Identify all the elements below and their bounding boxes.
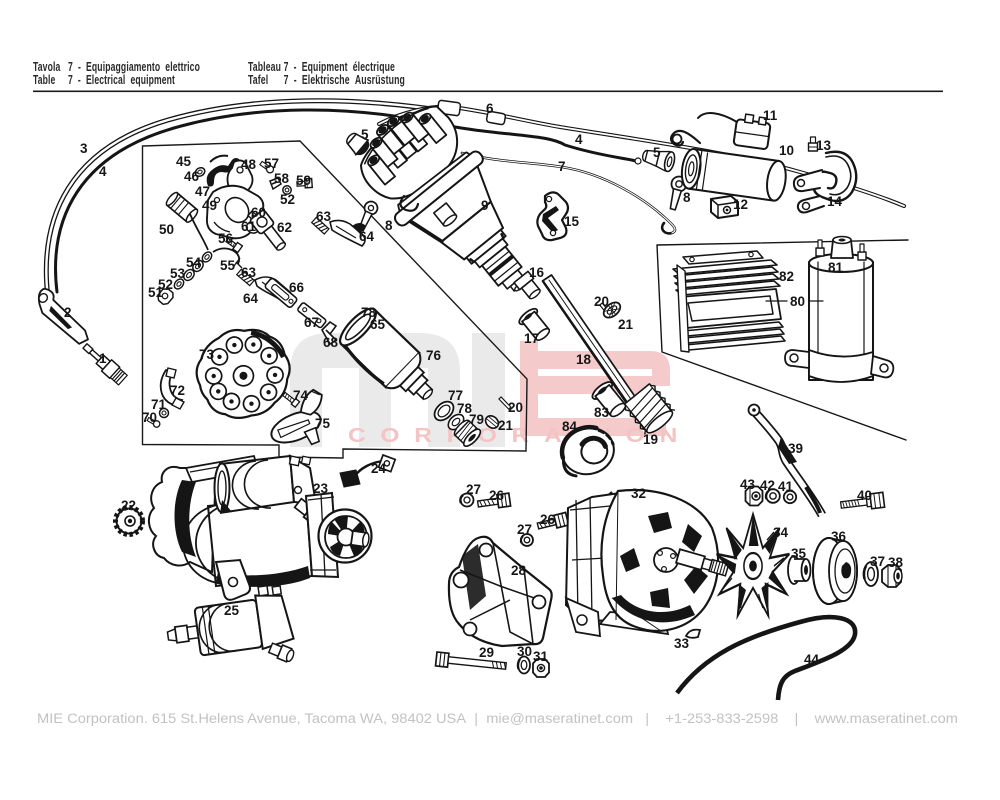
svg-text:73: 73 [199,347,215,362]
svg-text:3: 3 [80,141,88,156]
svg-text:19: 19 [643,432,658,447]
svg-text:4: 4 [99,164,107,179]
svg-text:14: 14 [827,194,843,209]
svg-text:39: 39 [788,441,803,456]
svg-text:7: 7 [558,159,566,174]
svg-text:37: 37 [870,554,885,569]
svg-text:55: 55 [220,258,236,273]
svg-text:46: 46 [184,169,200,184]
svg-text:Tafel 7 - Elektrische: Tafel 7 - Elektrische Ausrüstung [248,72,405,87]
svg-text:50: 50 [159,222,174,237]
svg-text:60: 60 [251,205,266,220]
svg-text:8: 8 [385,218,393,233]
svg-text:32: 32 [631,486,646,501]
svg-text:33: 33 [674,636,690,651]
svg-text:26: 26 [540,512,556,527]
svg-text:57: 57 [264,156,279,171]
svg-text:74: 74 [293,388,309,403]
svg-text:62: 62 [277,220,292,235]
svg-text:13: 13 [816,138,832,153]
svg-text:52: 52 [280,192,295,207]
svg-text:78: 78 [361,305,377,320]
svg-text:12: 12 [733,197,748,212]
svg-text:75: 75 [315,416,331,431]
svg-text:84: 84 [562,419,578,434]
svg-text:20: 20 [508,400,523,415]
svg-text:22: 22 [121,498,136,513]
svg-text:64: 64 [243,291,259,306]
svg-text:8: 8 [683,190,691,205]
svg-text:10: 10 [779,143,794,158]
svg-text:MIE Corporation. 615 St.Helens: MIE Corporation. 615 St.Helens Avenue, T… [37,711,958,726]
svg-text:47: 47 [195,184,210,199]
svg-text:4: 4 [575,132,583,147]
svg-text:6: 6 [486,101,494,116]
svg-text:58: 58 [274,171,290,186]
svg-text:27: 27 [517,522,532,537]
svg-text:70: 70 [142,410,157,425]
svg-text:30: 30 [517,644,532,659]
svg-text:72: 72 [170,383,185,398]
svg-text:56: 56 [218,231,234,246]
svg-text:5: 5 [361,127,369,142]
svg-text:21: 21 [498,418,514,433]
svg-text:80: 80 [790,294,805,309]
svg-text:23: 23 [313,481,329,496]
svg-text:64: 64 [359,229,375,244]
svg-text:68: 68 [323,335,339,350]
svg-text:15: 15 [564,214,580,229]
svg-text:41: 41 [778,479,794,494]
svg-text:25: 25 [224,603,240,618]
svg-text:48: 48 [241,157,257,172]
svg-text:79: 79 [469,412,484,427]
svg-text:59: 59 [296,173,311,188]
svg-text:38: 38 [888,555,904,570]
svg-text:81: 81 [828,260,844,275]
svg-text:26: 26 [489,488,505,503]
svg-text:45: 45 [176,154,192,169]
svg-text:11: 11 [763,108,778,123]
svg-text:27: 27 [466,482,481,497]
svg-text:20: 20 [594,294,609,309]
svg-text:63: 63 [241,265,257,280]
svg-text:Table 7 - Electrical eq: Table 7 - Electrical equipment [33,72,175,87]
svg-text:17: 17 [524,331,539,346]
svg-text:9: 9 [481,198,489,213]
svg-text:36: 36 [831,529,847,544]
svg-text:16: 16 [529,265,545,280]
svg-text:29: 29 [479,645,494,660]
svg-text:67: 67 [304,315,319,330]
svg-text:5: 5 [653,145,661,160]
svg-text:61: 61 [241,219,257,234]
svg-text:51: 51 [148,285,164,300]
svg-text:83: 83 [594,405,610,420]
svg-text:63: 63 [316,209,332,224]
svg-text:24: 24 [371,461,387,476]
svg-text:28: 28 [511,563,527,578]
svg-text:18: 18 [576,352,592,367]
svg-text:43: 43 [740,477,756,492]
svg-text:54: 54 [186,255,202,270]
svg-text:66: 66 [289,280,305,295]
svg-text:21: 21 [618,317,634,332]
svg-text:82: 82 [779,269,794,284]
svg-text:31: 31 [533,649,549,664]
svg-text:34: 34 [773,525,789,540]
svg-text:49: 49 [202,198,217,213]
svg-text:35: 35 [791,546,807,561]
svg-text:1: 1 [99,351,107,366]
svg-text:40: 40 [857,488,872,503]
svg-text:42: 42 [760,478,775,493]
svg-text:2: 2 [64,305,72,320]
svg-text:44: 44 [804,652,820,667]
svg-text:76: 76 [426,348,442,363]
